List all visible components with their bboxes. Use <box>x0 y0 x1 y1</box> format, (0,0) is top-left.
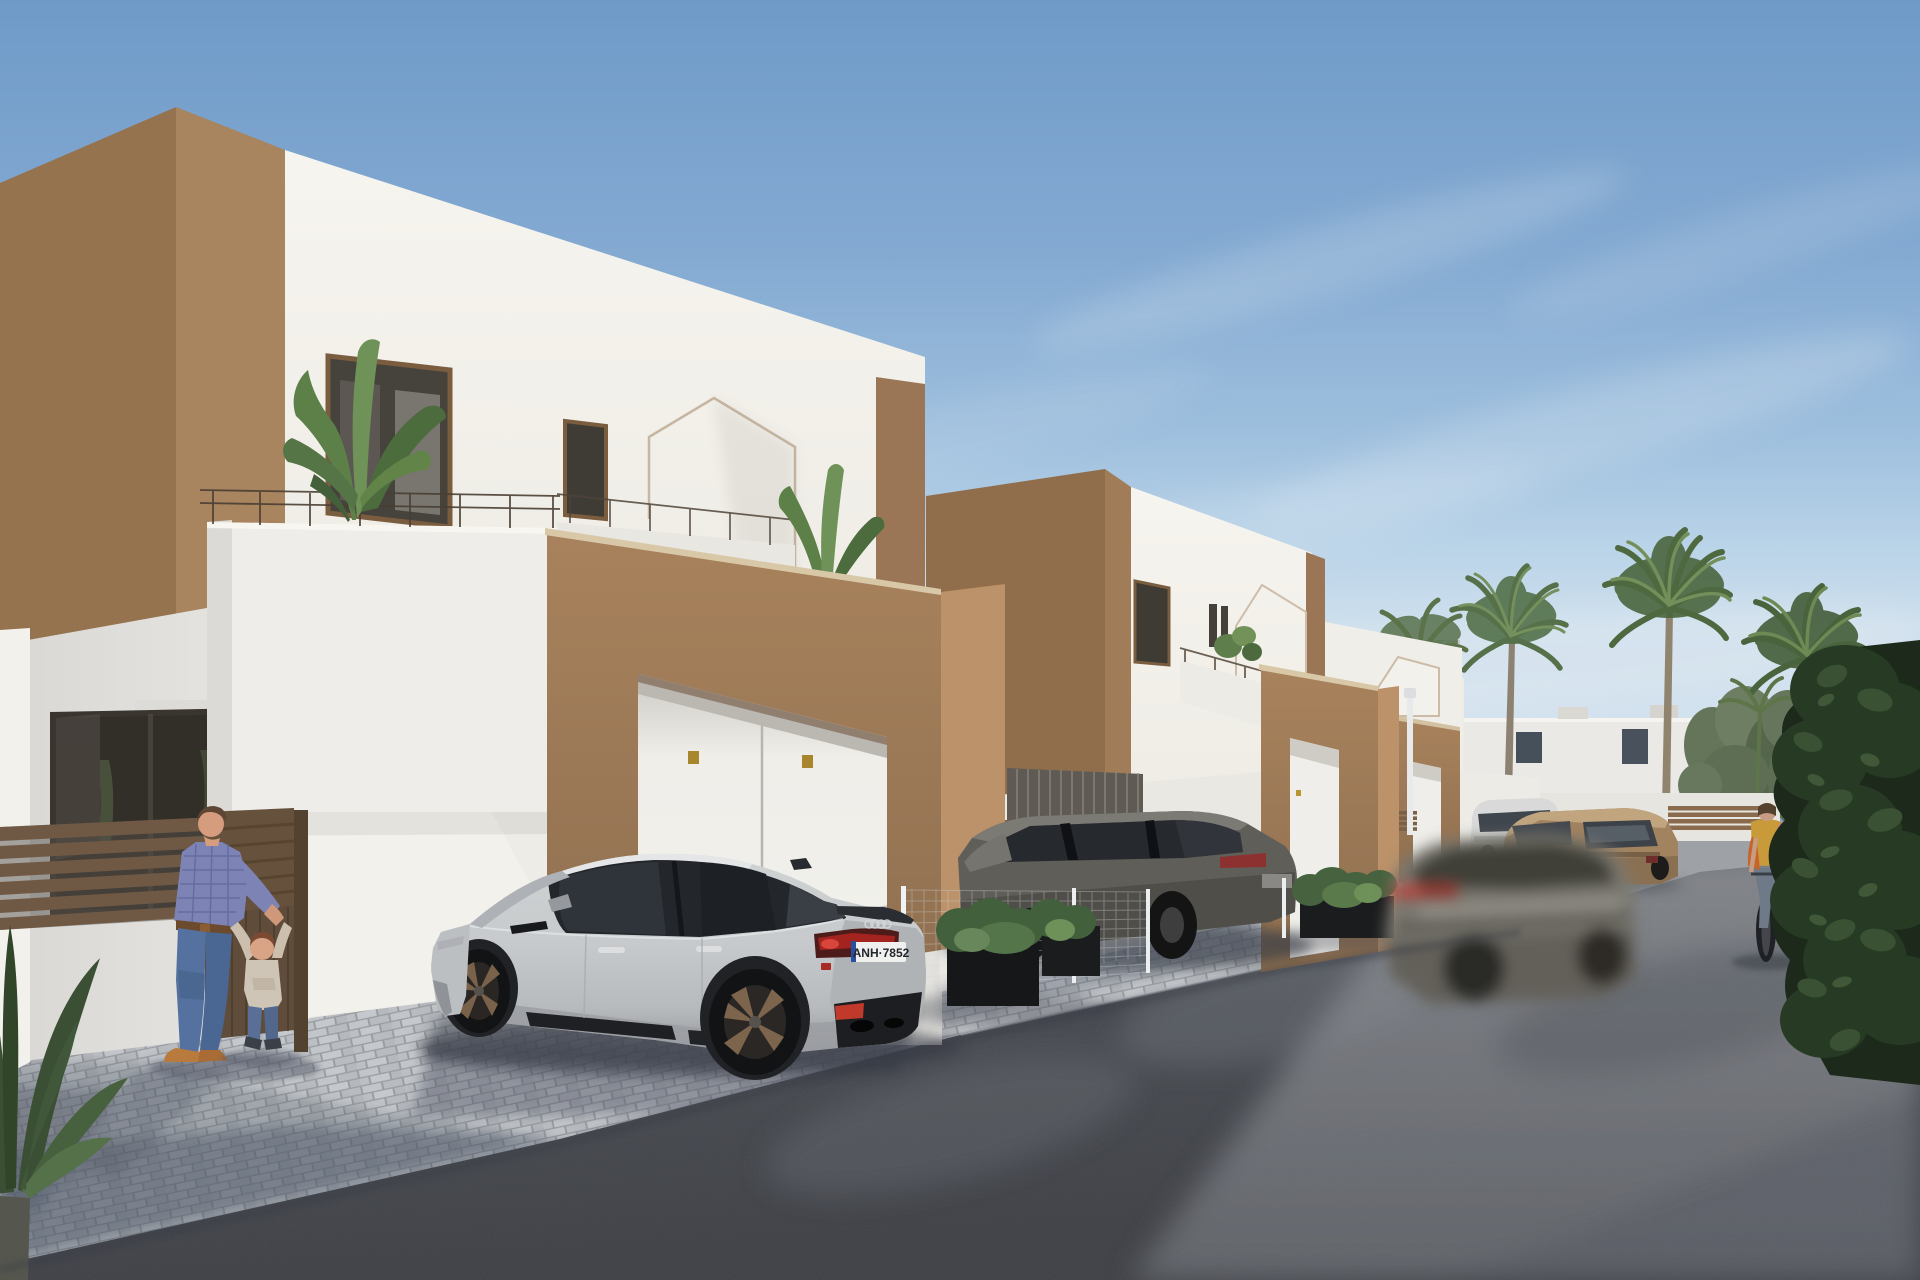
svg-text:ANH·7852: ANH·7852 <box>853 946 910 960</box>
